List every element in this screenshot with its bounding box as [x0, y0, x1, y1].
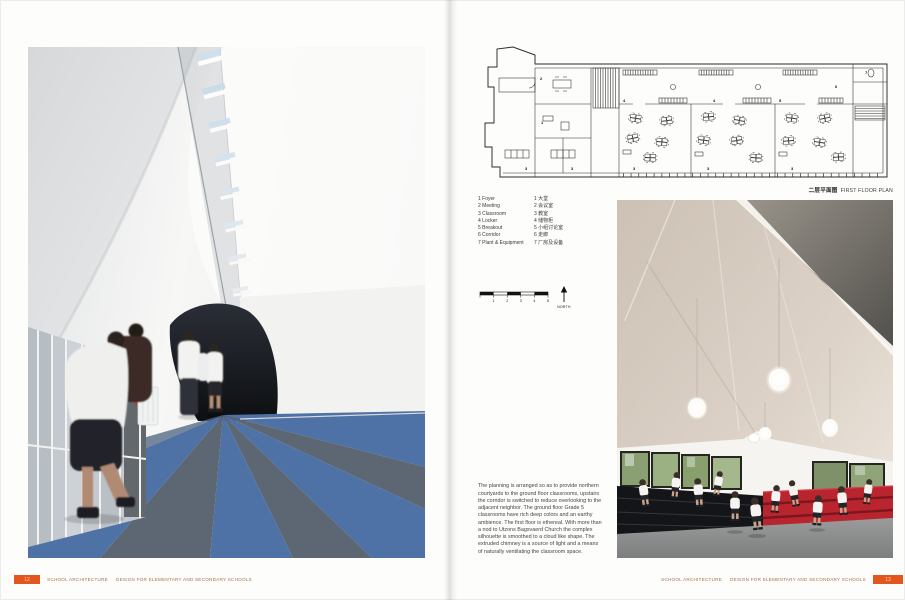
- plan-outline: [485, 47, 887, 177]
- pendant-bulb: [759, 427, 772, 441]
- classroom-desks: [625, 111, 845, 163]
- right-footer: SCHOOL ARCHITECTUREDESIGN FOR ELEMENTARY…: [661, 575, 903, 584]
- legend-label-cn: 3 教室: [534, 211, 598, 218]
- left-footer-text: SCHOOL ARCHITECTUREDESIGN FOR ELEMENTARY…: [47, 577, 252, 582]
- scale-tick: 2: [506, 299, 508, 303]
- book-title: DESIGN FOR ELEMENTARY AND SECONDARY SCHO…: [116, 577, 252, 582]
- book-title: DESIGN FOR ELEMENTARY AND SECONDARY SCHO…: [730, 577, 866, 582]
- page-gutter-shadow: [444, 0, 458, 600]
- right-page-photo: [617, 200, 893, 558]
- plan-caption-english: FIRST FLOOR PLAN: [841, 188, 893, 194]
- left-footer: 12 SCHOOL ARCHITECTUREDESIGN FOR ELEMENT…: [14, 575, 252, 584]
- room-number: 4: [713, 98, 716, 103]
- legend-label-en: 6 Corridor: [478, 232, 534, 239]
- series-title: SCHOOL ARCHITECTURE: [47, 577, 108, 582]
- room-number: 3: [571, 166, 574, 171]
- legend-row: 3 Classroom3 教室: [478, 211, 598, 218]
- scale-tick-labels: 1 2 3 4 5: [493, 299, 549, 303]
- lockers: [623, 70, 843, 103]
- north-arrow-icon: NORTH: [557, 286, 571, 309]
- legend-label-en: 1 Foyer: [478, 196, 534, 203]
- body-text: The planning is arranged so as to provid…: [478, 483, 602, 556]
- room-number: 3: [791, 166, 794, 171]
- legend-label-en: 2 Meeting: [478, 203, 534, 210]
- pendant-bulb: [769, 369, 790, 392]
- wall-light: [749, 434, 760, 443]
- plan-legend: 1 Foyer1 大堂 2 Meeting2 会议室 3 Classroom3 …: [478, 196, 598, 247]
- left-page-photo: [28, 47, 425, 558]
- plan-caption-chinese: 二层平面图: [809, 188, 838, 194]
- corridor-photo-illustration: [28, 47, 425, 558]
- legend-row: 2 Meeting2 会议室: [478, 203, 598, 210]
- room-number: 5: [779, 98, 782, 103]
- room-number: 3: [633, 166, 636, 171]
- first-floor-plan-drawing: 2 1 3 3 4 3 4 3 5 3 6 7: [483, 42, 893, 184]
- assembly-space-illustration: [617, 200, 893, 558]
- room-number: 4: [623, 98, 626, 103]
- scale-tick: 4: [533, 299, 535, 303]
- book-spread: 2 1 3 3 4 3 4 3 5 3 6 7 二层平面图FIRST FLOOR…: [0, 0, 905, 600]
- legend-label-cn: 6 走廊: [534, 232, 598, 239]
- legend-row: 7 Plant & Equipment7 厂房及设备: [478, 240, 598, 247]
- scale-tick: 3: [520, 299, 522, 303]
- plan-caption: 二层平面图FIRST FLOOR PLAN: [809, 186, 893, 194]
- pendant-bulb: [822, 419, 838, 437]
- legend-label-en: 5 Breakout: [478, 225, 534, 232]
- page-number-badge: 12: [14, 575, 40, 584]
- legend-label-cn: 7 厂房及设备: [534, 240, 598, 247]
- legend-label-en: 3 Classroom: [478, 211, 534, 218]
- room-number: 3: [707, 166, 710, 171]
- scale-bar-and-north-arrow: 1 2 3 4 5 NORTH: [478, 284, 578, 310]
- scale-bar: 1 2 3 4 5: [480, 292, 549, 303]
- stairs: [593, 68, 619, 108]
- scale-tick: 5: [547, 299, 549, 303]
- room-number: 2: [540, 76, 543, 81]
- scale-tick: 1: [493, 299, 495, 303]
- legend-label-en: 4 Locker: [478, 218, 534, 225]
- north-label: NORTH: [557, 305, 571, 309]
- page-number-badge: 13: [873, 575, 903, 584]
- series-title: SCHOOL ARCHITECTURE: [661, 577, 722, 582]
- room-number: 6: [835, 84, 838, 89]
- pendant-bulb: [688, 398, 706, 418]
- legend-label-cn: 2 会议室: [534, 203, 598, 210]
- room-number: 7: [865, 70, 868, 75]
- right-footer-text: SCHOOL ARCHITECTUREDESIGN FOR ELEMENTARY…: [661, 577, 866, 582]
- legend-label-en: 7 Plant & Equipment: [478, 240, 534, 247]
- legend-row: 6 Corridor6 走廊: [478, 232, 598, 239]
- room-number: 3: [525, 166, 528, 171]
